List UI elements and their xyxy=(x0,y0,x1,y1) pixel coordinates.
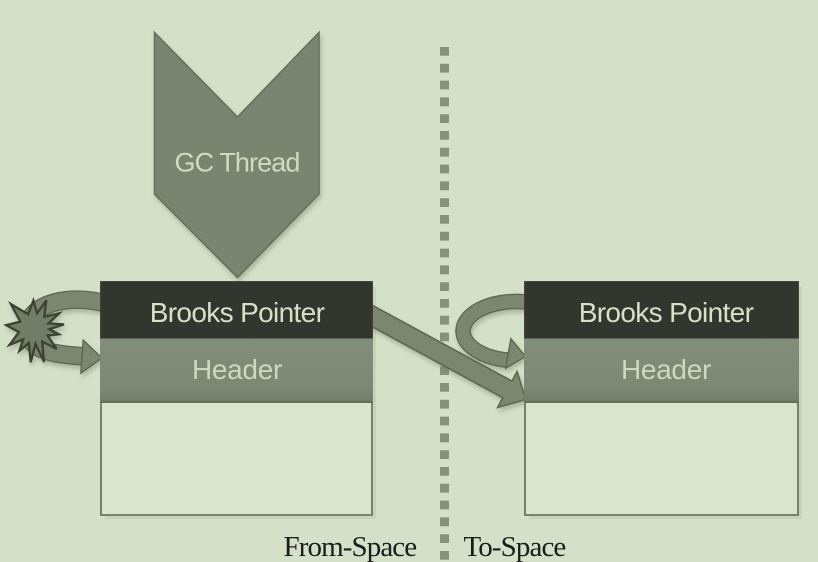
svg-text:Header: Header xyxy=(621,354,711,385)
svg-text:Header: Header xyxy=(192,354,282,385)
svg-text:From-Space: From-Space xyxy=(284,531,417,562)
svg-text:Brooks Pointer: Brooks Pointer xyxy=(579,297,754,328)
svg-text:Brooks Pointer: Brooks Pointer xyxy=(150,297,325,328)
svg-text:To-Space: To-Space xyxy=(464,531,566,562)
svg-text:GC Thread: GC Thread xyxy=(175,148,300,178)
